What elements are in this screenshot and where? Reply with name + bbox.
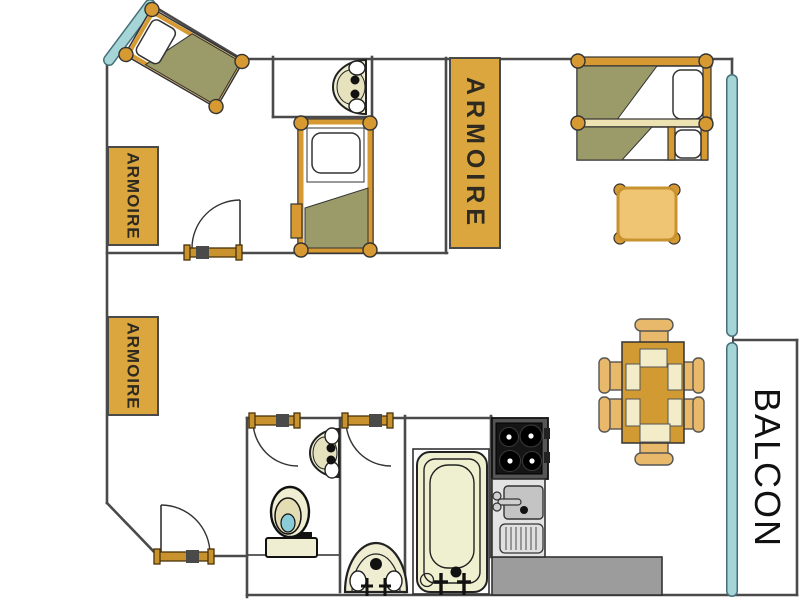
dining-chair-bottom [635, 441, 673, 465]
stove [492, 418, 550, 479]
bedpost-knob [294, 116, 308, 130]
wardrobe-bottom-left: ARMOIRE [107, 316, 159, 416]
door-wc [249, 413, 300, 466]
door-bathroom [342, 413, 393, 466]
soap-tray [349, 99, 365, 113]
placemat [626, 399, 640, 426]
table-top [618, 188, 676, 240]
door-post [154, 549, 160, 564]
door-bedroom [184, 200, 242, 260]
apartment-floor-plan: ARMOIRE ARMOIRE ARMOIRE BALCON [0, 0, 800, 600]
placemat [668, 399, 682, 426]
drain [520, 506, 528, 514]
washbasin-bathroom [345, 543, 407, 596]
door-entrance [154, 505, 214, 564]
bed-head-rail [575, 57, 712, 66]
toilet-cistern [266, 538, 317, 557]
bedside-shelf [291, 204, 302, 238]
door-bar [188, 248, 238, 257]
faucet-handle [493, 492, 501, 500]
bedpost-knob [363, 243, 377, 257]
chair-back [693, 397, 704, 432]
door-swing-arc [161, 505, 210, 554]
door-hinge [186, 550, 199, 563]
soap-tray [350, 571, 366, 591]
wardrobe-label: ARMOIRE [461, 76, 490, 229]
washbasin-nook [333, 60, 366, 114]
faucet-handle [327, 456, 336, 465]
door-swing-arc [253, 421, 298, 466]
chair-back [599, 358, 610, 393]
drain [370, 558, 382, 570]
door-post [387, 413, 393, 428]
faucet-handle [351, 90, 360, 99]
door-bar [158, 552, 210, 561]
wardrobe-center: ARMOIRE [449, 57, 501, 249]
bathtub [413, 449, 489, 595]
chair-back [599, 397, 610, 432]
dining-set [599, 319, 704, 465]
toilet [266, 487, 317, 557]
kitchen-counter [492, 557, 662, 595]
bedpost-knob [571, 116, 585, 130]
door-swing-arc [346, 421, 391, 466]
faucet-handle [327, 444, 336, 453]
placemat [640, 424, 670, 442]
bedpost-knob [699, 117, 713, 131]
door-post [249, 413, 255, 428]
bed-side-rail [668, 127, 675, 160]
stove-knob [544, 452, 550, 463]
door-swing-arc [192, 200, 240, 248]
burner-center [529, 458, 534, 463]
soap-tray [386, 571, 402, 591]
bed-pillow [673, 70, 703, 119]
door-post [342, 413, 348, 428]
wardrobe-top-left: ARMOIRE [107, 146, 159, 246]
burner-center [507, 458, 512, 463]
kitchen-sink [492, 479, 545, 557]
dining-chair-left-1 [599, 358, 624, 393]
bed-side-rail [701, 127, 708, 160]
bed-pillow [312, 133, 360, 173]
bedpost-knob [699, 54, 713, 68]
burner-center [506, 434, 511, 439]
counter-top [492, 557, 662, 595]
wardrobe-label: ARMOIRE [123, 152, 143, 239]
wardrobe-label: ARMOIRE [123, 322, 143, 409]
placemat [640, 349, 667, 367]
door-post [184, 245, 190, 260]
bed-mid-rail [575, 119, 712, 127]
washbasin-wc [310, 428, 339, 478]
dining-chair-left-2 [599, 397, 624, 432]
placemat [626, 364, 640, 390]
toilet-water [281, 514, 295, 532]
faucet-spout [498, 499, 521, 505]
placemat [668, 364, 682, 390]
balcony-label: BALCON [747, 387, 789, 547]
twin-beds [571, 54, 713, 160]
outer-wall-chamfer [107, 503, 158, 556]
drain [451, 567, 462, 578]
bedpost-knob [363, 116, 377, 130]
door-hinge [196, 246, 209, 259]
balcony-area: BALCON [738, 341, 797, 594]
bedpost-knob [294, 243, 308, 257]
stove-knob [544, 428, 550, 439]
side-table [614, 184, 680, 244]
door-post [236, 245, 242, 260]
bedpost-knob [571, 54, 585, 68]
chair-back [635, 319, 673, 331]
burner-center [528, 433, 533, 438]
bed-single-vertical [291, 116, 377, 257]
drainer-ridges [506, 527, 536, 550]
chair-back [635, 453, 673, 465]
washbasin-inner [337, 70, 365, 104]
faucet-handle [351, 76, 360, 85]
door-post [208, 549, 214, 564]
soap-tray [325, 462, 339, 478]
door-hinge [276, 414, 289, 427]
bed-pillow [675, 130, 701, 158]
bed-side-rail [703, 59, 711, 125]
soap-tray [349, 61, 365, 75]
chair-back [693, 358, 704, 393]
door-bar [346, 416, 390, 425]
door-bar [253, 416, 297, 425]
dining-chair-top [635, 319, 673, 344]
floor-plan-drawing [0, 0, 800, 600]
faucet-handle [493, 503, 501, 511]
soap-tray [325, 428, 339, 444]
door-hinge [369, 414, 382, 427]
door-post [294, 413, 300, 428]
